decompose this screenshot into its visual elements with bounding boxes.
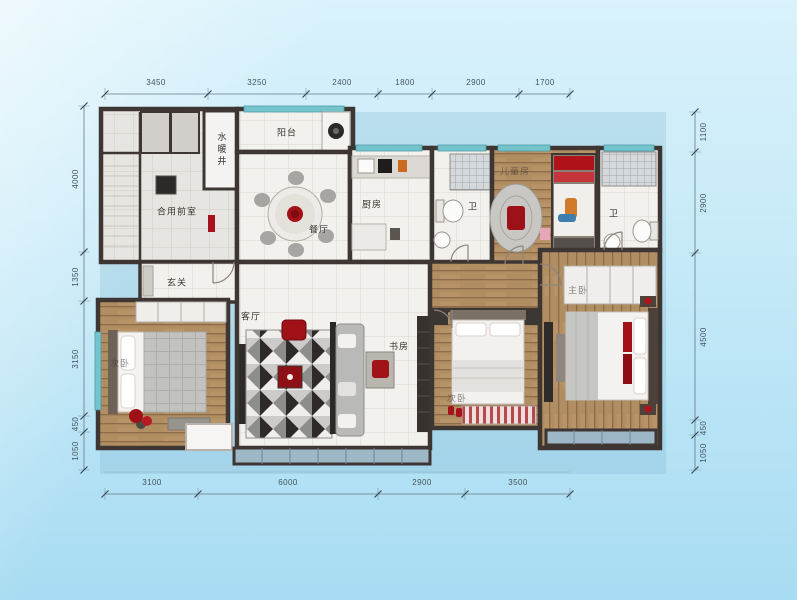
washer-door-icon [333,128,339,134]
elevator-right [171,112,199,153]
dim-right-2: 2900 [700,193,708,212]
dining-chair [320,189,336,203]
bed-pillow [634,358,646,394]
slipper-icon [448,406,454,415]
ac-platform [186,424,232,450]
master-tv-console [544,322,553,402]
dining-room [237,152,350,262]
room-label-kitchen: 厨房 [362,201,382,210]
dining-chair [288,171,304,185]
bed-headboard [450,310,526,320]
coffee-table-decor [287,374,293,380]
kid-blanket [558,214,576,222]
red-lamp-icon [645,406,652,413]
dim-left-3: 3150 [72,349,80,368]
dim-bottom-4: 3500 [508,479,527,487]
dim-bottom-2: 6000 [278,479,297,487]
red-flower-icon [129,409,143,423]
kids-room-window [498,145,550,151]
bathroom-b-window [604,145,654,151]
bedroom-mid [432,310,540,428]
toilet-icon [633,220,651,242]
dim-right-5: 1050 [700,443,708,462]
bed-pillow [121,374,135,408]
sofa-back-wall [330,322,336,434]
bed-blanket-plaid [144,332,206,412]
dim-right-4: 450 [700,421,708,436]
table-centerpiece-core [291,210,299,218]
shower-area-icon [602,152,656,186]
dim-right-1: 1100 [700,123,708,142]
electric-shaft-box [156,176,176,194]
room-label-entry: 玄关 [167,279,187,288]
living-balcony-glass [234,448,430,464]
room-label-study: 书房 [389,343,409,352]
kettle-icon [398,160,407,172]
bathroom-a-window [438,145,486,151]
room-label-shaft: 水暖井 [217,132,226,168]
desk-chair-red [372,360,389,378]
floor-plan [0,0,797,600]
dining-chair [254,193,270,207]
room-label-bath-b: 卫 [609,210,619,219]
bed-headboard [648,308,658,404]
red-flower-icon [142,416,152,426]
sofa-pillow [338,414,356,428]
room-label-dining: 餐厅 [309,226,329,235]
bedroom-left-window [95,332,101,410]
room-label-balcony: 阳台 [277,129,297,138]
shower-area-icon [450,154,490,190]
red-lamp-icon [645,298,652,305]
corridor-floor [430,262,540,310]
elevator-left [141,112,170,153]
striped-rug-icon [462,406,536,424]
bed-pillow [634,318,646,354]
shoe-cabinet [143,266,153,296]
dim-top-3: 2400 [332,79,351,87]
kids-bed-headboard-red [554,156,594,170]
dim-top-5: 2900 [466,79,485,87]
dim-top-6: 1700 [535,79,554,87]
dim-left-4: 450 [72,417,80,432]
room-label-bath-a: 卫 [468,203,478,212]
kitchen-cabinet [352,224,386,250]
master-bay-window [546,430,656,445]
room-label-vestibule: 合用前室 [157,208,197,217]
kitchen-stool [390,228,400,240]
entry-hall [140,262,237,302]
dim-left-5: 1050 [72,441,80,460]
nightstand [524,312,538,325]
bed-pillow [490,323,520,336]
slipper-icon [456,408,462,417]
bed-blanket [452,360,524,392]
kids-chair-red [507,206,525,230]
red-armchair-icon [282,320,306,340]
room-label-bedroom-mid: 次卧 [447,395,467,404]
washbasin-icon [434,232,450,248]
dim-left-1: 4000 [72,169,80,188]
room-label-master: 主卧 [568,287,588,296]
sofa-pillow [338,334,356,348]
master-bedroom [540,250,660,448]
toilet-icon [443,200,463,222]
dining-chair [260,231,276,245]
bed-headboard [108,330,118,414]
dim-bottom-3: 2900 [412,479,431,487]
kitchen-sink-icon [358,159,374,173]
dim-right-3: 4500 [700,327,708,346]
room-label-living: 客厅 [241,313,261,322]
kitchen-window [356,145,422,151]
red-pillow-icon [623,322,632,352]
room-label-bedroom-left: 次卧 [110,360,130,369]
bed-end-bench [556,334,565,382]
red-pillow-icon [623,354,632,384]
cooktop-icon [378,159,392,173]
dim-bottom-1: 3100 [142,479,161,487]
dim-top-4: 1800 [395,79,414,87]
pink-nightstand [540,228,550,240]
sofa-pillow [338,382,356,396]
kids-room [490,145,598,265]
bed-pillow [456,323,486,336]
dim-top-1: 3450 [146,79,165,87]
dim-left-2: 1350 [72,267,80,286]
entry-floor [140,262,237,302]
living-room [237,262,430,448]
room-label-kids: 儿童房 [500,168,530,177]
fire-hydrant-icon [208,215,215,232]
floor-plan-canvas: 水暖井 合用前室 阳台 餐厅 厨房 卫 儿童房 卫 玄关 客厅 书房 次卧 次卧… [0,0,797,600]
kids-bed-stripe-red [554,172,594,182]
dim-top-2: 3250 [247,79,266,87]
bathroom-b [598,145,660,250]
bed-throw-gray [566,312,598,400]
dining-chair [288,243,304,257]
bathroom-a [432,145,492,262]
corridor [430,262,540,310]
balcony-window [244,106,344,112]
bookshelf-icon [417,316,430,432]
